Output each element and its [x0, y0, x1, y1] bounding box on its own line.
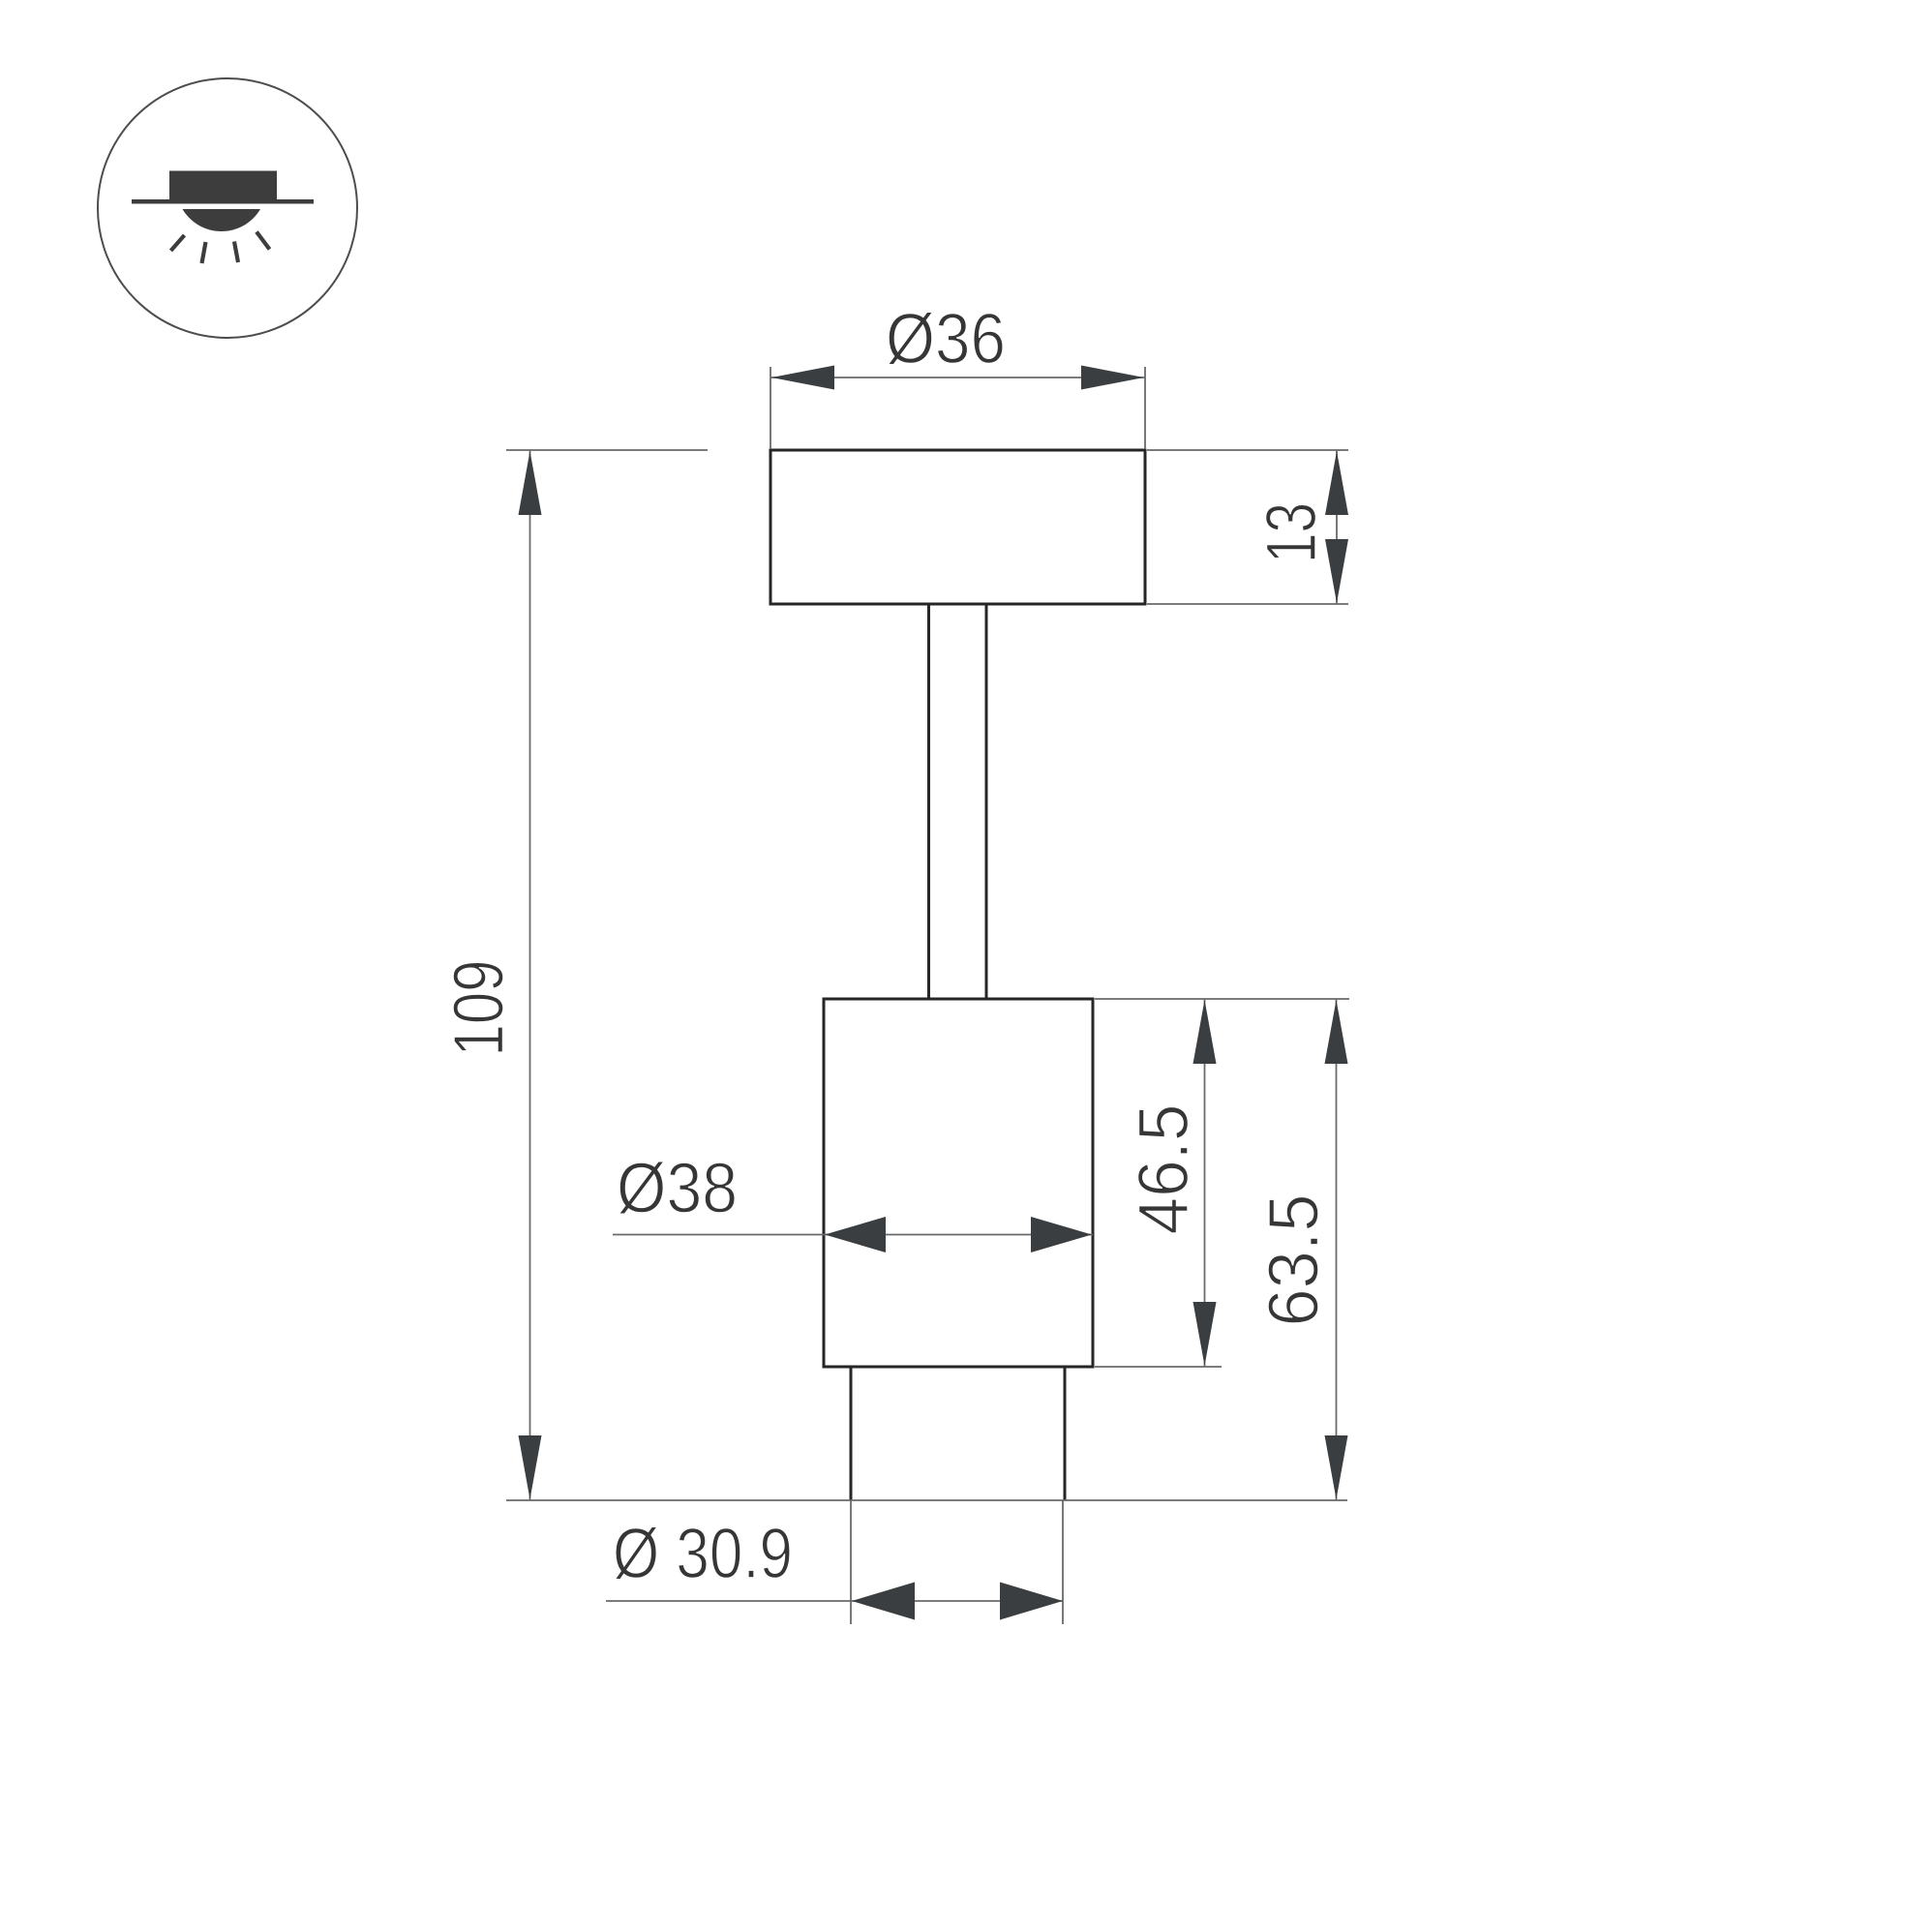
svg-text:109: 109	[440, 960, 519, 1057]
svg-text:46.5: 46.5	[1125, 1104, 1203, 1235]
svg-text:Ø 30.9: Ø 30.9	[613, 1515, 793, 1593]
svg-text:Ø38: Ø38	[617, 1150, 738, 1228]
svg-text:Ø36: Ø36	[886, 300, 1006, 378]
svg-text:63.5: 63.5	[1255, 1194, 1334, 1327]
svg-text:13: 13	[1253, 502, 1331, 563]
